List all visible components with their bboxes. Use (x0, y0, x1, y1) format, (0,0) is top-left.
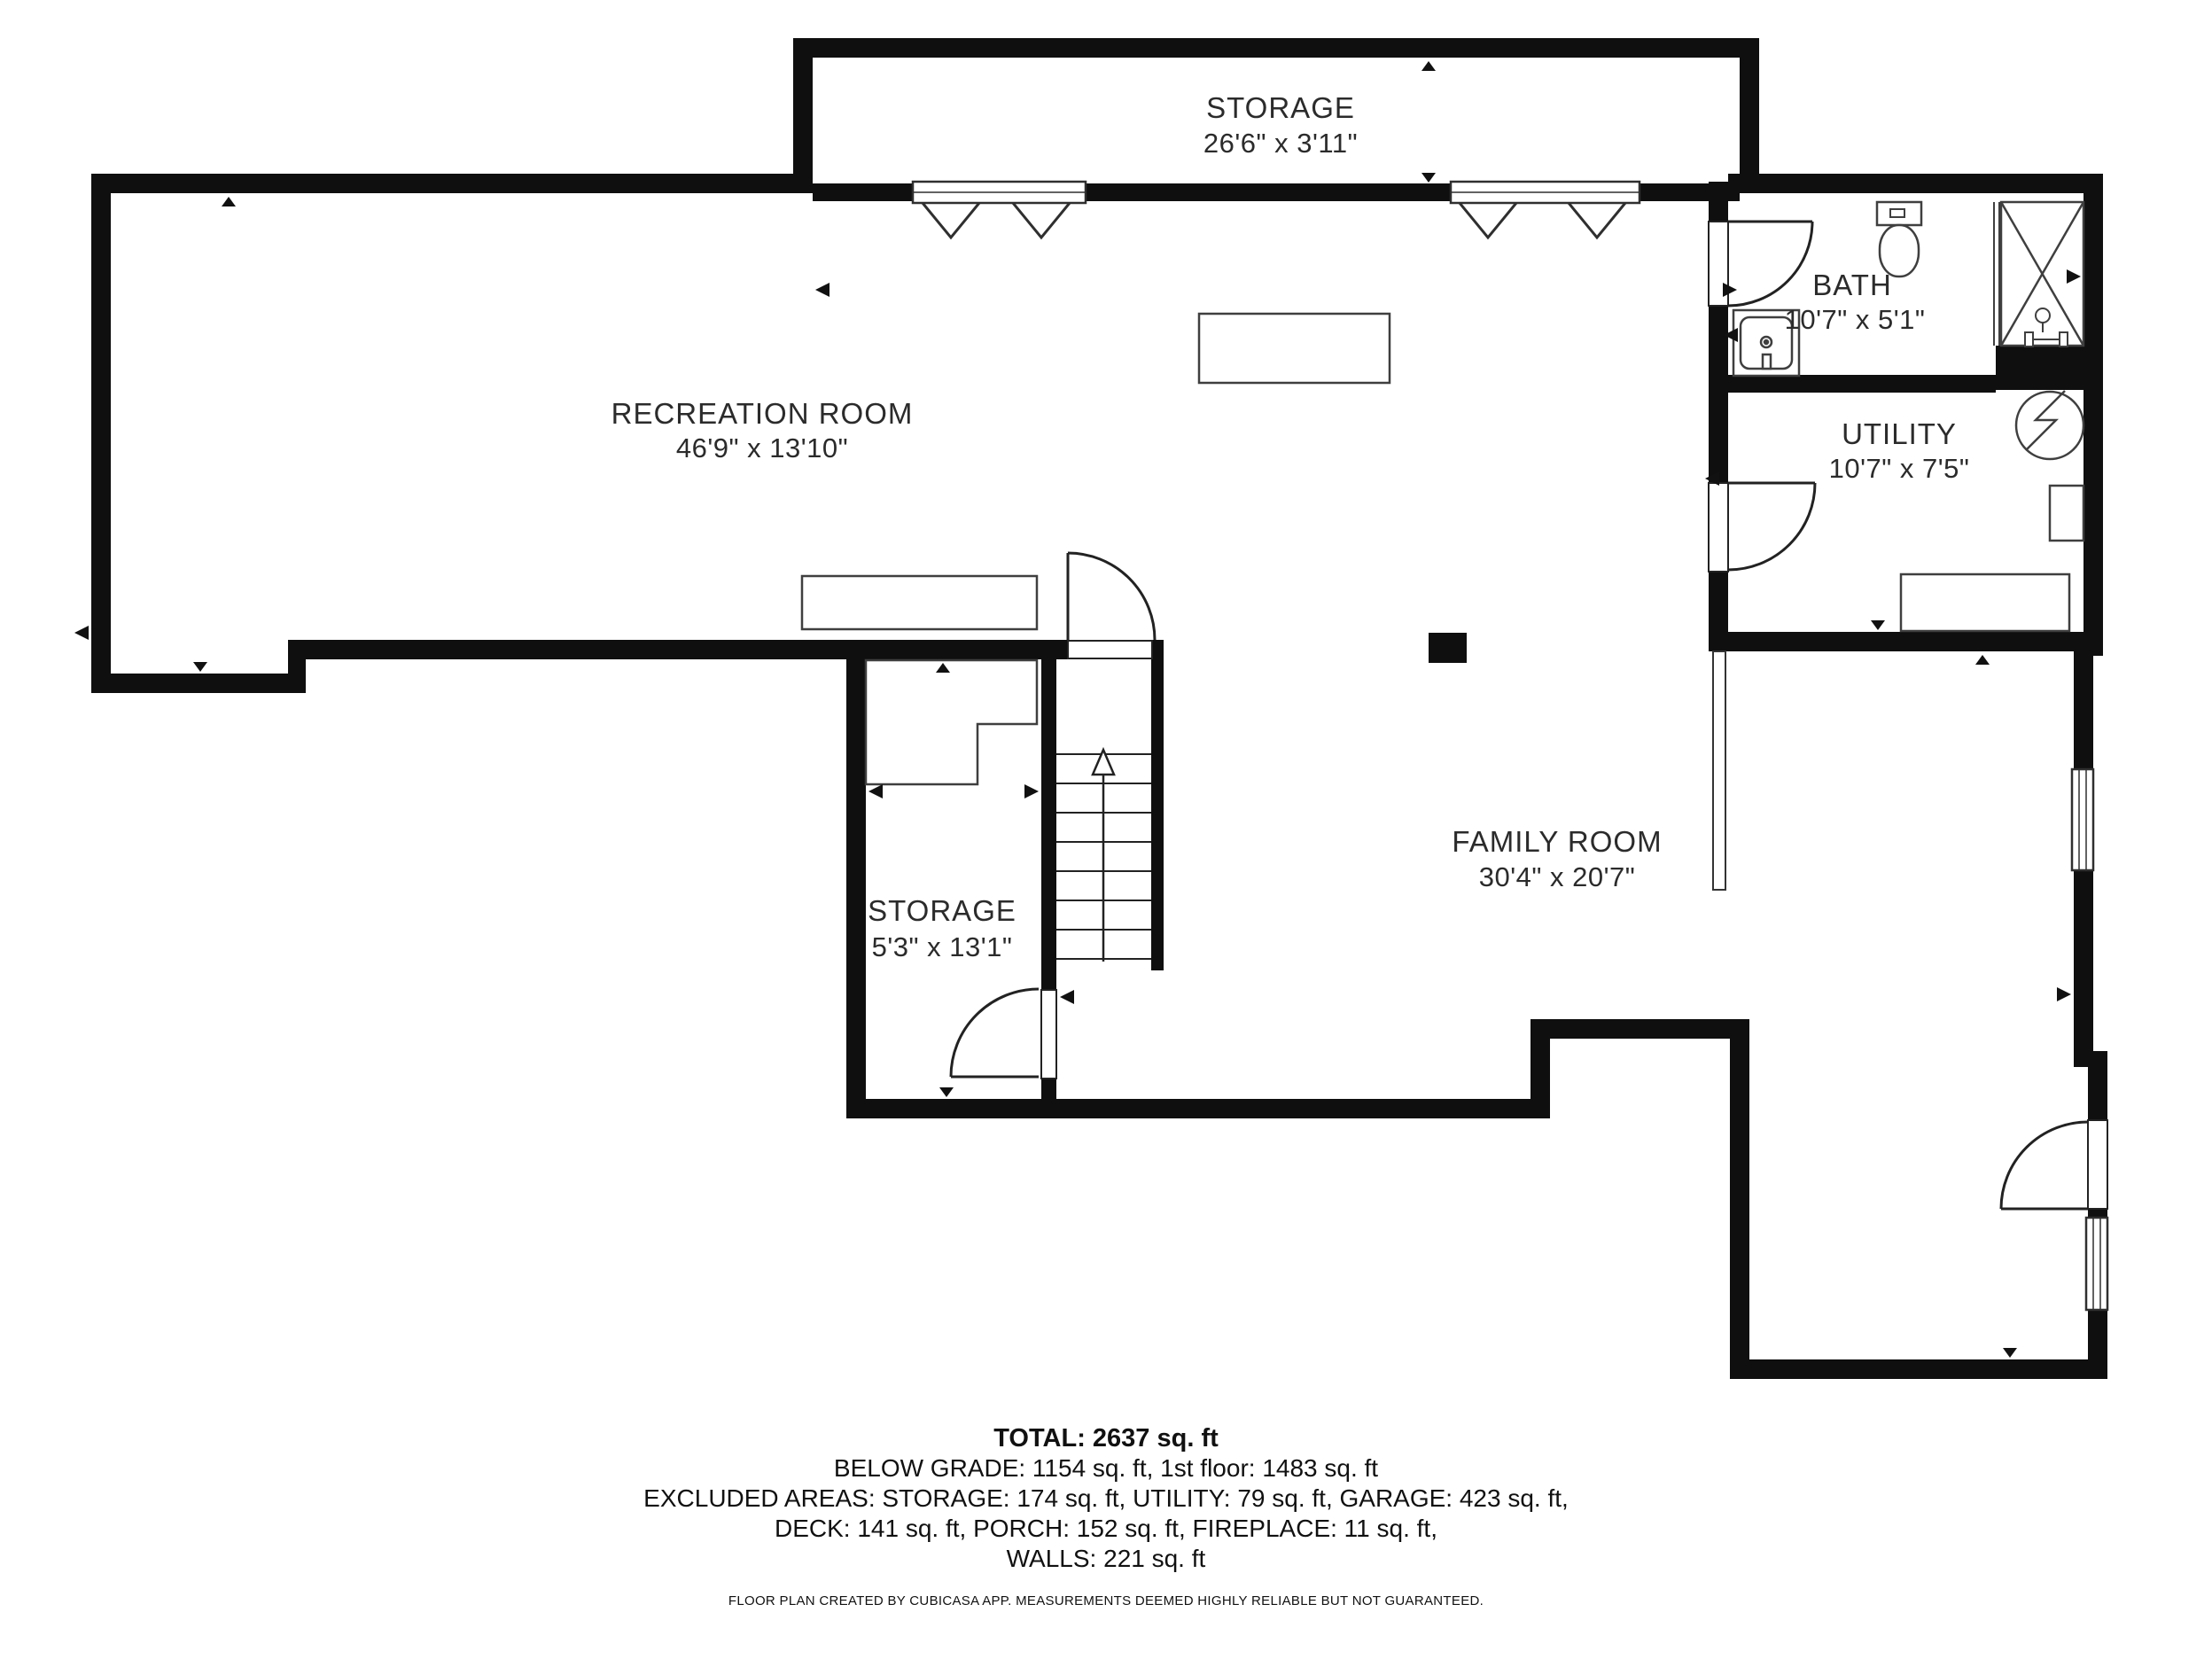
opening-chevrons (923, 203, 1625, 238)
wall-segment (91, 174, 793, 193)
room-dims-storage-mid: 5'3" x 13'1" (872, 931, 1013, 962)
room-dims-storage-top: 26'6" x 3'11" (1203, 128, 1358, 159)
summary-excluded-2: DECK: 141 sq. ft, PORCH: 152 sq. ft, FIR… (0, 1514, 2212, 1544)
toilet-icon (1877, 202, 1921, 276)
furniture-layer (802, 314, 2083, 890)
direction-marker-icon (2003, 1348, 2017, 1358)
wall-segment (91, 674, 306, 693)
floor-plan-canvas: STORAGE 26'6" x 3'11" RECREATION ROOM 46… (0, 0, 2212, 1659)
wall-segment (2074, 651, 2093, 769)
door-stair-hall (1068, 553, 1155, 658)
direction-marker-icon (1024, 784, 1039, 798)
opening-chevron-icon (1460, 203, 1516, 238)
direction-marker-icon (1421, 61, 1436, 71)
wall-segment (1730, 1039, 1749, 1379)
direction-marker-icon (1060, 990, 1074, 1004)
room-dims-family: 30'4" x 20'7" (1479, 861, 1636, 892)
wall-segment (1709, 632, 2103, 651)
room-dims-utility: 10'7" x 7'5" (1829, 453, 1970, 484)
wall-segment (1709, 306, 1728, 483)
wall-segment (1086, 183, 1451, 201)
window-icon (1451, 182, 1640, 203)
wall-segment (1530, 1019, 1749, 1039)
wall-segment (2088, 1067, 2107, 1120)
door-swing-icon (1728, 483, 1815, 570)
room-dims-recreation: 46'9" x 13'10" (676, 432, 848, 463)
window-icon (913, 182, 1086, 203)
door-middle-storage (951, 989, 1056, 1079)
area-summary: TOTAL: 2637 sq. ft BELOW GRADE: 1154 sq.… (0, 1423, 2212, 1608)
direction-marker-icon (2057, 987, 2071, 1001)
floor-plan-page: STORAGE 26'6" x 3'11" RECREATION ROOM 46… (0, 0, 2212, 1659)
window-icon (2072, 769, 2093, 870)
opening-chevron-icon (923, 203, 979, 238)
room-label-utility: UTILITY (1842, 417, 1957, 450)
summary-excluded-1: EXCLUDED AREAS: STORAGE: 174 sq. ft, UTI… (0, 1484, 2212, 1514)
wall-pillar (1429, 633, 1467, 663)
door-swing-icon (1068, 553, 1155, 640)
door-layer (951, 222, 2107, 1209)
wall-segment (1041, 640, 1056, 990)
appliance-utility-right (2050, 486, 2083, 541)
staircase (1056, 750, 1151, 962)
wall-segment (1728, 375, 1996, 393)
wall-segment (793, 38, 813, 193)
counter-storage-L (866, 660, 1037, 784)
opening-chevron-icon (1569, 203, 1625, 238)
wall-segment (2074, 1051, 2107, 1067)
direction-marker-icon (1975, 655, 1990, 665)
wall-segment (846, 640, 866, 1118)
direction-marker-icon (74, 626, 89, 640)
summary-below-grade: BELOW GRADE: 1154 sq. ft, 1st floor: 148… (0, 1453, 2212, 1484)
door-swing-icon (1728, 222, 1812, 306)
direction-marker-icon (2067, 269, 2081, 284)
appliance-utility-wide (1901, 574, 2069, 631)
knee-wall-below-utility (1713, 651, 1725, 890)
footer-disclaimer: FLOOR PLAN CREATED BY CUBICASA APP. MEAS… (0, 1593, 2212, 1608)
utility-fixtures (2016, 391, 2083, 459)
room-label-storage-top: STORAGE (1206, 91, 1355, 124)
room-label-storage-mid: STORAGE (868, 894, 1016, 927)
door-swing-icon (951, 989, 1039, 1077)
direction-marker-icon (1421, 173, 1436, 183)
room-dims-bath: 10'7" x 5'1" (1785, 304, 1926, 335)
wall-layer (91, 38, 2107, 1379)
door-utility (1709, 483, 1815, 572)
summary-walls: WALLS: 221 sq. ft (0, 1544, 2212, 1574)
direction-marker-icon (1723, 283, 1737, 297)
wall-segment (288, 640, 1068, 659)
window-layer (913, 182, 2107, 1310)
room-label-family: FAMILY ROOM (1452, 825, 1662, 858)
water-heater-icon (2016, 391, 2083, 459)
direction-marker-icon (193, 662, 207, 672)
wall-segment (1728, 174, 2103, 193)
wall-segment (91, 174, 111, 693)
direction-marker-icon (222, 197, 236, 206)
wall-segment (813, 183, 913, 201)
wall-segment (1740, 38, 1759, 193)
marker-layer (74, 61, 2081, 1358)
opening-chevron-icon (1013, 203, 1070, 238)
direction-marker-icon (939, 1087, 954, 1097)
wall-segment (846, 1099, 1550, 1118)
room-label-bath: BATH (1812, 269, 1892, 301)
wall-segment (2074, 870, 2093, 1051)
shower-head-icon (2025, 308, 2068, 347)
wall-segment (1730, 1359, 2107, 1379)
direction-marker-icon (1871, 620, 1885, 630)
room-label-recreation: RECREATION ROOM (611, 397, 914, 430)
direction-marker-icon (815, 283, 829, 297)
summary-total: TOTAL: 2637 sq. ft (0, 1423, 2212, 1453)
door-swing-icon (2001, 1122, 2088, 1209)
window-icon (2086, 1218, 2107, 1310)
counter-recreation (802, 576, 1037, 629)
wall-segment (1996, 346, 2103, 390)
table-family-room (1199, 314, 1390, 383)
door-exterior-right (2001, 1120, 2107, 1209)
wall-segment (1530, 1019, 1550, 1118)
wall-segment (2083, 174, 2103, 656)
direction-marker-icon (868, 784, 883, 798)
wall-segment (1151, 640, 1164, 970)
wall-segment (2088, 1209, 2107, 1218)
wall-segment (793, 38, 1759, 58)
wall-segment (1709, 182, 1728, 222)
